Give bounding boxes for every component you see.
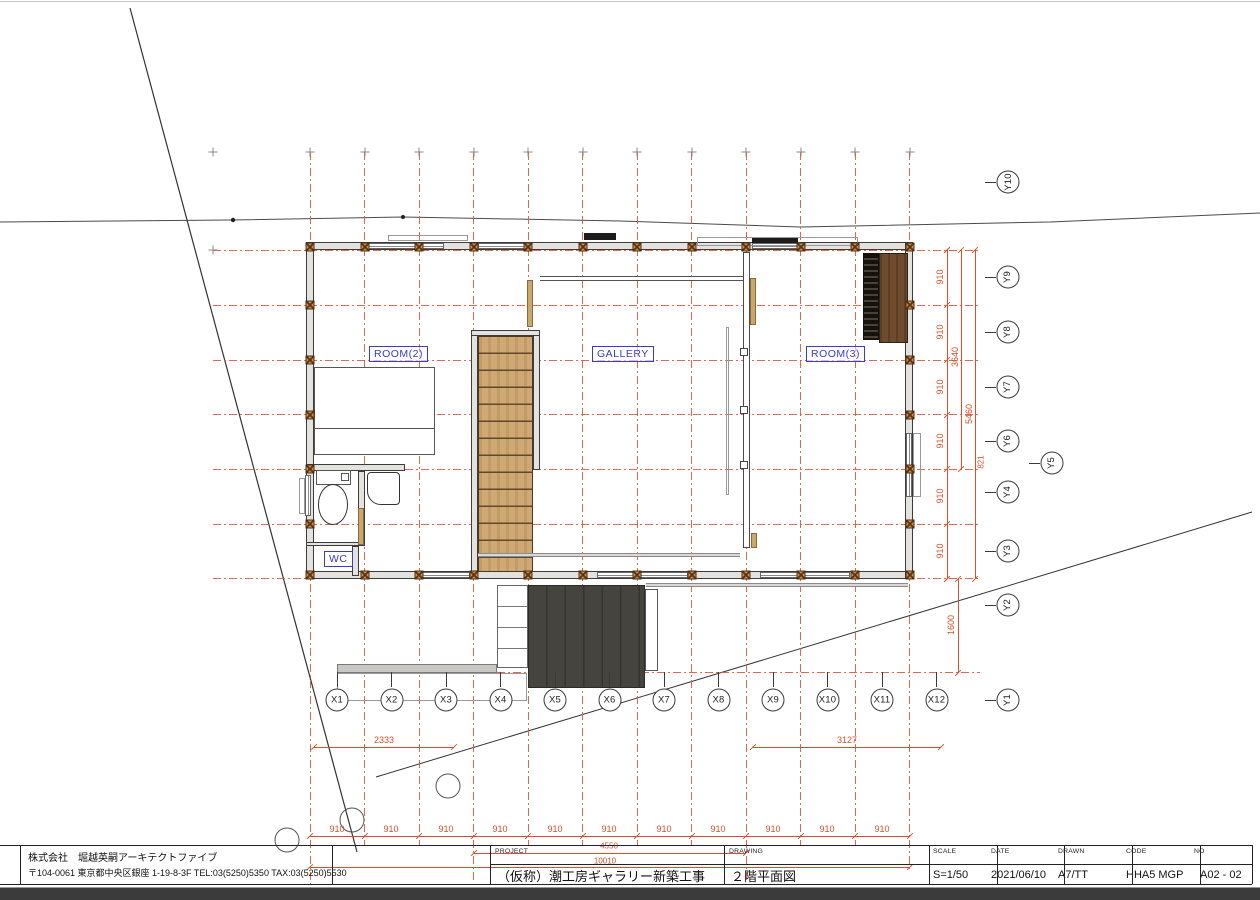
title-block-divider — [724, 845, 725, 884]
grid-bubble-y: Y5 — [1041, 452, 1064, 475]
bubble-leader — [985, 492, 996, 493]
title-block-divider — [332, 845, 333, 884]
column-post — [306, 465, 315, 474]
plan-structure — [314, 428, 435, 429]
plan-structure — [388, 235, 468, 241]
dimension-text: 910 — [438, 824, 453, 834]
grid-bubble-x: X3 — [435, 689, 458, 712]
dimension-text: 910 — [935, 324, 945, 339]
column-post — [306, 301, 315, 310]
wall-segment — [305, 475, 311, 516]
dimension-text: 821 — [977, 455, 986, 468]
bubble-leader — [985, 277, 996, 278]
room-label-room3: ROOM(3) — [806, 346, 865, 362]
project-label: PROJECT — [495, 848, 528, 855]
column-post — [633, 242, 642, 251]
drawing-sheet: X1X2X3X4X5X6X7X8X9X10X11X12Y10Y9Y8Y7Y6Y5… — [0, 0, 1260, 900]
wall-segment — [299, 478, 305, 514]
plan-structure — [528, 585, 645, 688]
grid-line-x — [691, 152, 692, 845]
bubble-leader — [985, 387, 996, 388]
grid-bubble-x: X6 — [598, 689, 621, 712]
bubble-tick — [718, 672, 719, 687]
company-name: 株式会社 堀越英嗣アーキテクトファイブ — [28, 849, 217, 864]
column-post — [306, 356, 315, 365]
grid-bubble-x: X9 — [762, 689, 785, 712]
project-name: （仮称）潮工房ギャラリー新築工事 — [497, 866, 705, 885]
column-post — [905, 356, 914, 365]
wall-segment — [471, 330, 478, 578]
wall-segment — [421, 572, 470, 578]
plan-structure — [540, 280, 743, 281]
title-block-divider — [20, 845, 21, 884]
plan-structure — [497, 585, 528, 668]
company-address: 〒104-0061 東京都中央区銀座 1-19-8-3F TEL:03(5250… — [28, 866, 347, 879]
drawn-label: DRAWN — [1058, 848, 1084, 855]
title-block-divider — [1252, 845, 1253, 884]
column-post — [687, 570, 696, 579]
plan-structure — [726, 327, 729, 495]
column-post — [905, 242, 914, 251]
bubble-tick — [936, 672, 937, 687]
plan-structure — [478, 336, 533, 572]
date-label: DATE — [991, 848, 1009, 855]
dimension-tick — [938, 744, 944, 750]
grid-end-cross — [360, 148, 369, 157]
grid-bubble-y: Y9 — [997, 266, 1020, 289]
grid-bubble-y: Y8 — [997, 321, 1020, 344]
drawing-name: ２階平面図 — [731, 866, 796, 885]
grid-bubble-x: X4 — [489, 689, 512, 712]
grid-end-cross — [209, 246, 218, 255]
drawn-value: A7/TT — [1058, 869, 1088, 881]
column-post — [578, 242, 587, 251]
title-block-divider — [1132, 845, 1133, 884]
wall-segment — [597, 572, 688, 578]
dimension-text: 910 — [935, 543, 945, 558]
plan-structure — [540, 276, 743, 277]
dimension-text: 910 — [935, 433, 945, 448]
column-post — [905, 570, 914, 579]
column-post — [796, 570, 805, 579]
dimension-line — [310, 836, 910, 837]
plan-structure — [527, 280, 533, 327]
grid-line-x — [800, 152, 801, 845]
plan-structure — [367, 472, 400, 505]
dimension-text: 910 — [547, 824, 562, 834]
grid-end-cross — [796, 148, 805, 157]
dimension-text: 3640 — [950, 347, 960, 367]
grid-end-cross — [687, 148, 696, 157]
grid-bubble-x: X12 — [925, 689, 948, 712]
bubble-leader — [985, 605, 996, 606]
bubble-leader — [985, 332, 996, 333]
plan-structure — [751, 533, 757, 548]
grid-bubble-x: X5 — [544, 689, 567, 712]
bubble-tick — [773, 672, 774, 687]
plan-structure — [645, 589, 658, 671]
bubble-tick — [609, 672, 610, 687]
plan-structure — [740, 348, 748, 356]
bubble-tick — [882, 672, 883, 687]
column-post — [524, 242, 533, 251]
grid-bubble-x: X10 — [816, 689, 839, 712]
grid-line-x — [637, 152, 638, 845]
dimension-line — [753, 747, 941, 748]
column-post — [415, 242, 424, 251]
dimension-text: 910 — [329, 824, 344, 834]
dimension-text: 910 — [383, 824, 398, 834]
dimension-text: 910 — [935, 269, 945, 284]
dimension-text: 4550 — [600, 842, 618, 851]
column-post — [306, 520, 315, 529]
grid-end-cross — [578, 148, 587, 157]
grid-end-cross — [524, 148, 533, 157]
grid-bubble-y: Y1 — [997, 689, 1020, 712]
column-post — [633, 570, 642, 579]
bubble-tick — [827, 672, 828, 687]
grid-end-cross — [469, 148, 478, 157]
dimension-text: 3127 — [837, 735, 857, 745]
column-post — [905, 465, 914, 474]
dimension-text: 910 — [656, 824, 671, 834]
window-bottom-edge — [0, 887, 1260, 900]
room-label-gallery: GALLERY — [592, 346, 654, 362]
column-post — [851, 570, 860, 579]
column-post — [360, 242, 369, 251]
title-block-divider — [1064, 845, 1065, 884]
grid-end-cross — [742, 148, 751, 157]
plan-structure — [740, 461, 748, 469]
dimension-line — [314, 747, 454, 748]
column-post — [306, 242, 315, 251]
grid-bubble-y: Y7 — [997, 376, 1020, 399]
grid-bubble-x: X2 — [380, 689, 403, 712]
plan-structure — [314, 367, 435, 455]
bubble-leader — [985, 700, 996, 701]
dimension-text: 5460 — [964, 404, 974, 424]
scale-value: S=1/50 — [933, 869, 968, 881]
date-value: 2021/06/10 — [991, 869, 1046, 881]
title-block-divider — [1200, 845, 1201, 884]
dimension-text: 2333 — [374, 735, 394, 745]
wall-segment — [533, 330, 540, 470]
column-post — [306, 570, 315, 579]
title-block-divider — [997, 845, 998, 884]
dimension-text: 1600 — [946, 615, 956, 635]
bubble-tick — [555, 672, 556, 687]
grid-bubble-x: X11 — [871, 689, 894, 712]
grid-bubble-y: Y6 — [997, 430, 1020, 453]
grid-bubble-y: Y10 — [997, 171, 1020, 194]
grid-end-cross — [209, 148, 218, 157]
grid-end-cross — [633, 148, 642, 157]
wall-segment — [478, 243, 526, 249]
bubble-tick — [664, 672, 665, 687]
grid-end-cross — [851, 148, 860, 157]
plan-structure — [337, 664, 497, 673]
plan-structure — [341, 473, 349, 481]
plan-structure — [863, 253, 879, 340]
column-post — [578, 570, 587, 579]
bubble-tick — [391, 672, 392, 687]
grid-bubble-x: X7 — [653, 689, 676, 712]
plan-structure — [478, 553, 740, 557]
column-post — [524, 570, 533, 579]
dimension-text: 910 — [710, 824, 725, 834]
dimension-text: 910 — [765, 824, 780, 834]
title-block-divider — [490, 845, 491, 884]
column-post — [905, 410, 914, 419]
column-post — [469, 242, 478, 251]
dimension-text: 910 — [601, 824, 616, 834]
drawing-label: DRAWING — [729, 848, 763, 855]
grid-bubble-y: Y2 — [997, 594, 1020, 617]
dimension-line — [961, 250, 962, 469]
dimension-line — [958, 579, 959, 673]
column-post — [905, 301, 914, 310]
wall-segment — [913, 433, 921, 497]
grid-line-x — [582, 152, 583, 845]
dimension-text: 910 — [874, 824, 889, 834]
code-value: HHA5 MGP — [1126, 869, 1183, 881]
scale-label: SCALE — [933, 848, 956, 855]
bubble-tick — [500, 672, 501, 687]
dimension-line — [975, 250, 976, 579]
column-post — [796, 242, 805, 251]
floor-plan: X1X2X3X4X5X6X7X8X9X10X11X12Y10Y9Y8Y7Y6Y5… — [0, 0, 1260, 900]
column-post — [469, 570, 478, 579]
column-post — [360, 570, 369, 579]
wall-segment — [352, 546, 359, 576]
room-label-wc: WC — [324, 551, 353, 567]
no-value: A02 - 02 — [1200, 869, 1242, 881]
plan-structure — [646, 583, 908, 587]
bubble-leader — [1029, 463, 1040, 464]
plan-structure — [318, 484, 348, 525]
column-post — [851, 242, 860, 251]
bubble-leader — [985, 551, 996, 552]
grid-end-cross — [415, 148, 424, 157]
column-post — [905, 520, 914, 529]
column-post — [742, 242, 751, 251]
grid-end-cross — [306, 148, 315, 157]
wall-segment — [760, 572, 850, 578]
grid-bubble-x: X8 — [707, 689, 730, 712]
bubble-leader — [985, 441, 996, 442]
column-post — [687, 242, 696, 251]
dimension-tick — [451, 744, 457, 750]
plan-structure — [879, 253, 908, 343]
wall-segment — [743, 252, 750, 548]
plan-structure — [750, 278, 756, 325]
plan-structure — [752, 238, 798, 243]
grid-line-x — [419, 152, 420, 845]
bubble-leader — [985, 182, 996, 183]
dimension-text: 910 — [819, 824, 834, 834]
code-label: CODE — [1126, 848, 1146, 855]
column-post — [306, 410, 315, 419]
plan-structure — [740, 406, 748, 414]
bubble-tick — [446, 672, 447, 687]
bubble-tick — [337, 672, 338, 687]
column-post — [415, 570, 424, 579]
grid-bubble-x: X1 — [326, 689, 349, 712]
grid-bubble-y: Y3 — [997, 540, 1020, 563]
dimension-text: 910 — [492, 824, 507, 834]
column-post — [742, 570, 751, 579]
grid-bubble-y: Y4 — [997, 481, 1020, 504]
plan-structure — [584, 233, 616, 240]
room-label-room2: ROOM(2) — [369, 346, 428, 362]
dimension-text: 910 — [935, 379, 945, 394]
grid-end-cross — [905, 148, 914, 157]
wall-segment — [368, 243, 444, 249]
plan-structure — [358, 508, 364, 545]
dimension-text: 910 — [935, 488, 945, 503]
title-block-divider — [929, 845, 930, 884]
